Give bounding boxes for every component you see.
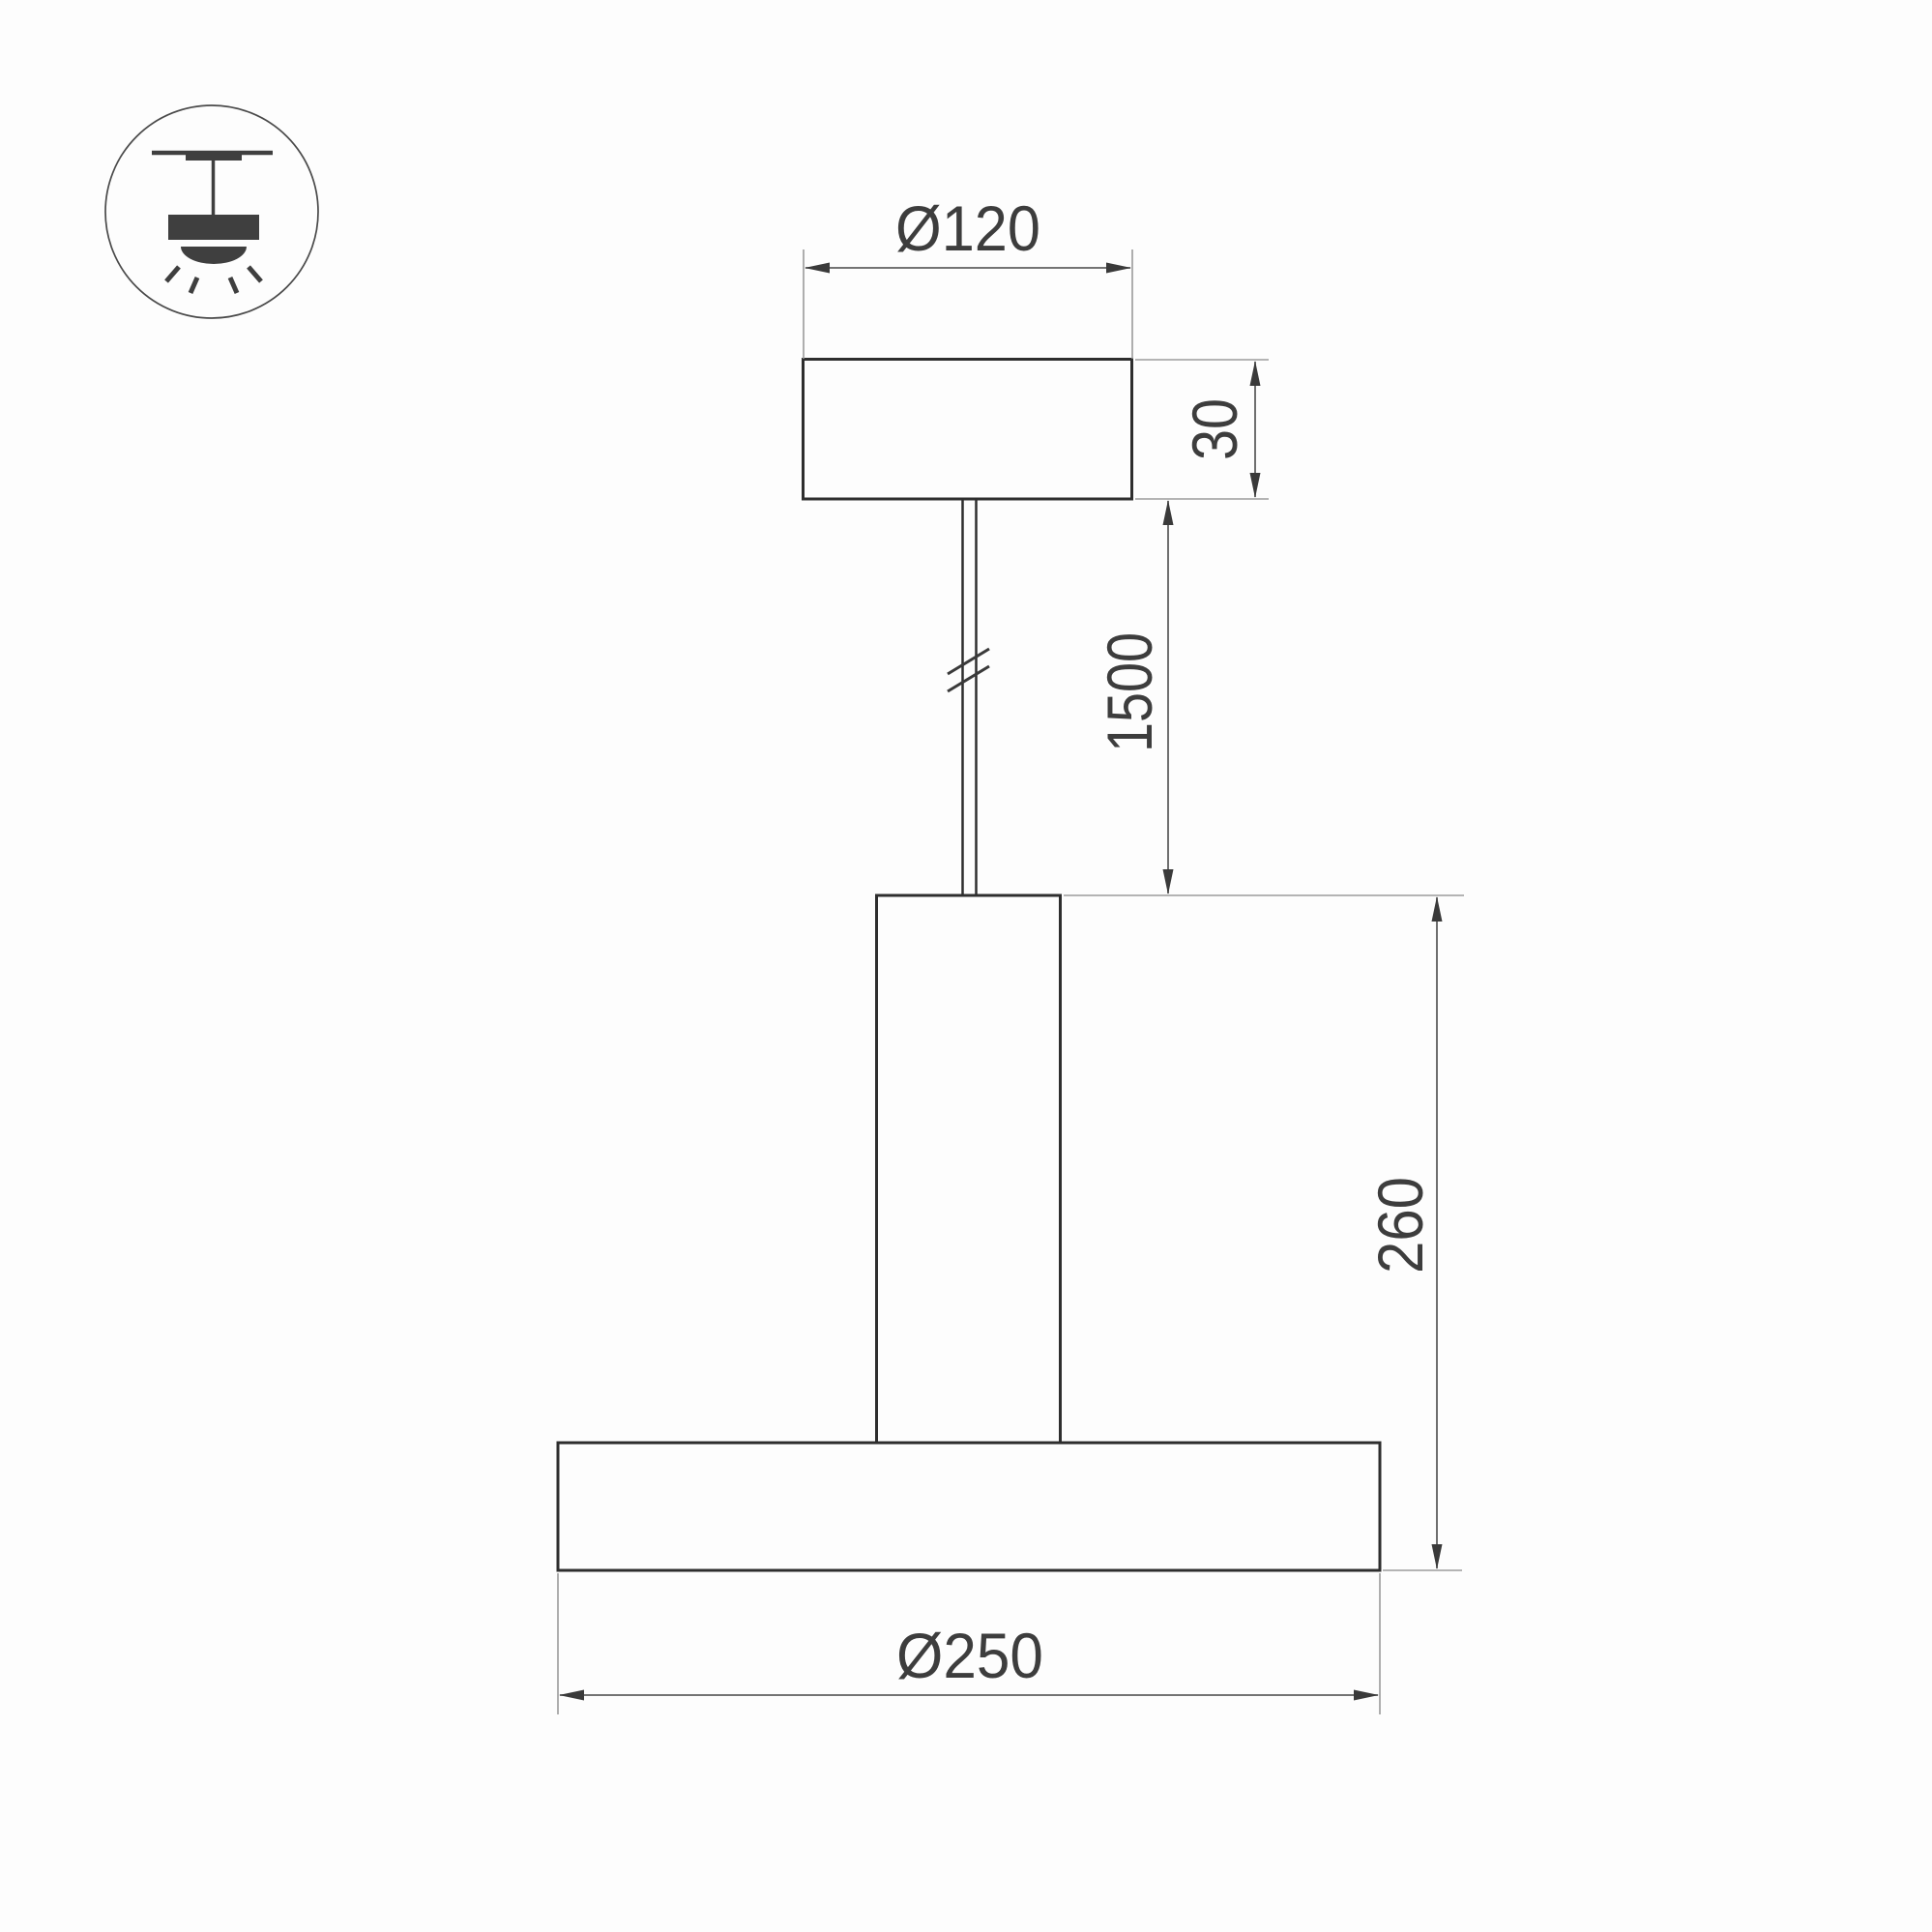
dimension-drawing: Ø120 30 1500 260 (0, 0, 1932, 1932)
arrowhead-up (1432, 896, 1443, 922)
pendant-ceiling-mount-icon (105, 105, 318, 318)
icon-canopy-bar (186, 153, 242, 161)
dim-label-fixture-height: 260 (1364, 1177, 1436, 1273)
arrowhead-down (1432, 1544, 1443, 1569)
arrowhead-up (1250, 361, 1261, 386)
dim-shade-diameter: Ø250 (558, 1573, 1380, 1714)
shade-disc-rect (558, 1443, 1380, 1570)
arrowhead-right (1354, 1690, 1379, 1701)
dim-label-canopy-diameter: Ø120 (895, 192, 1040, 264)
body-cylinder-rect (877, 895, 1061, 1443)
luminaire-outline (558, 360, 1380, 1571)
arrowhead-left (559, 1690, 584, 1701)
arrowhead-up (1163, 500, 1174, 525)
drawing-canvas: Ø120 30 1500 260 (0, 0, 1932, 1932)
cable-break-symbol (948, 649, 989, 691)
dim-cable-length: 1500 (1094, 500, 1173, 894)
arrowhead-down (1163, 869, 1174, 894)
arrowhead-left (805, 263, 830, 274)
arrowhead-right (1106, 263, 1131, 274)
canopy-rect (804, 360, 1132, 500)
dim-canopy-height: 30 (1135, 360, 1269, 499)
arrowhead-down (1250, 473, 1261, 498)
dim-label-shade-diameter: Ø250 (896, 1620, 1043, 1691)
dim-label-canopy-height: 30 (1179, 398, 1250, 460)
icon-lamp-body (168, 215, 259, 240)
dim-label-cable-length: 1500 (1094, 632, 1165, 752)
dim-canopy-diameter: Ø120 (804, 192, 1132, 359)
